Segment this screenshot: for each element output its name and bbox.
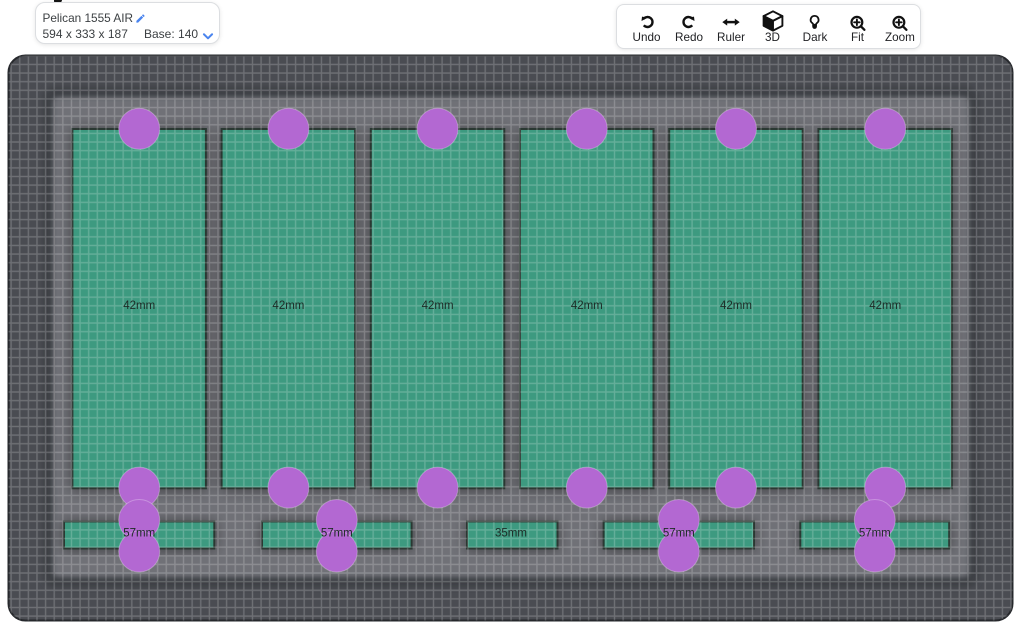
svg-text:57mm: 57mm <box>123 528 155 540</box>
svg-text:42mm: 42mm <box>720 300 752 312</box>
svg-text:57mm: 57mm <box>321 528 353 540</box>
svg-text:42mm: 42mm <box>123 300 155 312</box>
svg-text:35mm: 35mm <box>495 528 527 540</box>
svg-text:57mm: 57mm <box>859 528 891 540</box>
svg-text:42mm: 42mm <box>272 300 304 312</box>
svg-text:57mm: 57mm <box>663 528 695 540</box>
svg-text:42mm: 42mm <box>869 300 901 312</box>
svg-text:42mm: 42mm <box>422 300 454 312</box>
svg-text:42mm: 42mm <box>571 300 603 312</box>
